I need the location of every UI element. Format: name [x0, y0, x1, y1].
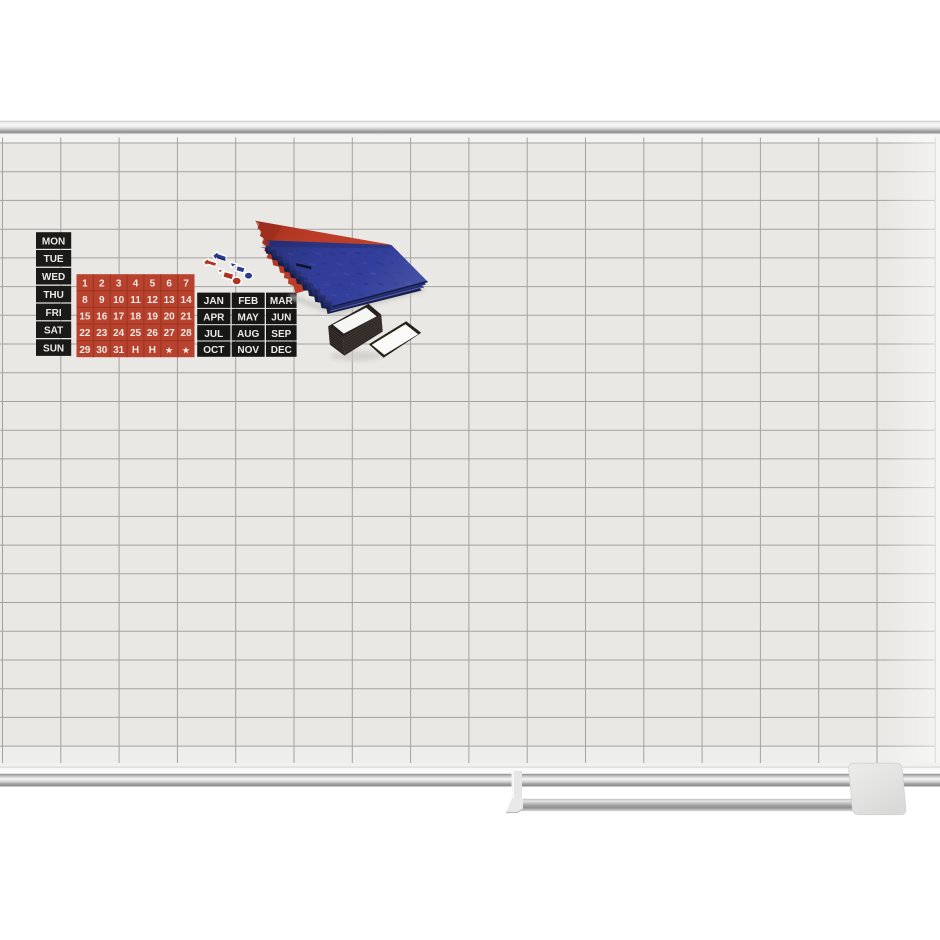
svg-text:6: 6	[166, 278, 172, 289]
svg-text:17: 17	[113, 312, 125, 323]
svg-text:12: 12	[147, 295, 159, 306]
svg-text:JAN: JAN	[204, 296, 224, 307]
svg-text:SUN: SUN	[43, 344, 64, 355]
svg-text:18: 18	[130, 312, 142, 323]
svg-text:22: 22	[79, 328, 91, 339]
svg-text:THU: THU	[43, 290, 64, 301]
svg-text:9: 9	[99, 295, 105, 306]
svg-text:4: 4	[133, 278, 139, 289]
svg-text:21: 21	[181, 312, 193, 323]
svg-text:30: 30	[96, 345, 108, 356]
svg-text:TUE: TUE	[44, 254, 64, 265]
svg-text:SAT: SAT	[44, 326, 63, 337]
svg-text:13: 13	[164, 295, 176, 306]
svg-text:3: 3	[116, 278, 122, 289]
svg-text:FEB: FEB	[238, 296, 258, 307]
svg-text:NOV: NOV	[237, 345, 259, 356]
svg-text:SEP: SEP	[271, 329, 291, 340]
svg-text:19: 19	[147, 312, 159, 323]
svg-text:23: 23	[96, 328, 108, 339]
svg-text:31: 31	[113, 345, 125, 356]
svg-text:FRI: FRI	[46, 308, 62, 319]
svg-text:H: H	[132, 345, 139, 356]
svg-text:24: 24	[113, 328, 125, 339]
svg-text:DEC: DEC	[271, 345, 292, 356]
svg-text:MAY: MAY	[238, 313, 260, 324]
svg-text:26: 26	[147, 328, 159, 339]
svg-text:16: 16	[96, 312, 108, 323]
svg-text:25: 25	[130, 328, 142, 339]
svg-text:2: 2	[99, 278, 105, 289]
svg-text:APR: APR	[203, 313, 225, 324]
svg-text:WED: WED	[42, 272, 65, 283]
svg-text:1: 1	[82, 278, 88, 289]
svg-text:29: 29	[79, 345, 91, 356]
svg-text:5: 5	[150, 278, 156, 289]
svg-text:★: ★	[165, 346, 174, 355]
svg-text:28: 28	[181, 328, 193, 339]
svg-text:MON: MON	[42, 236, 65, 247]
svg-text:11: 11	[130, 295, 141, 306]
svg-text:27: 27	[164, 328, 176, 339]
svg-text:AUG: AUG	[237, 329, 259, 340]
svg-text:20: 20	[164, 312, 176, 323]
svg-text:15: 15	[79, 312, 91, 323]
svg-text:JUL: JUL	[204, 329, 223, 340]
svg-text:H: H	[149, 345, 156, 356]
svg-text:★: ★	[181, 346, 190, 355]
svg-text:14: 14	[181, 295, 193, 306]
svg-text:OCT: OCT	[203, 345, 224, 356]
svg-text:10: 10	[113, 295, 125, 306]
svg-text:7: 7	[183, 278, 189, 289]
svg-text:JUN: JUN	[271, 313, 291, 324]
svg-text:8: 8	[82, 295, 88, 306]
